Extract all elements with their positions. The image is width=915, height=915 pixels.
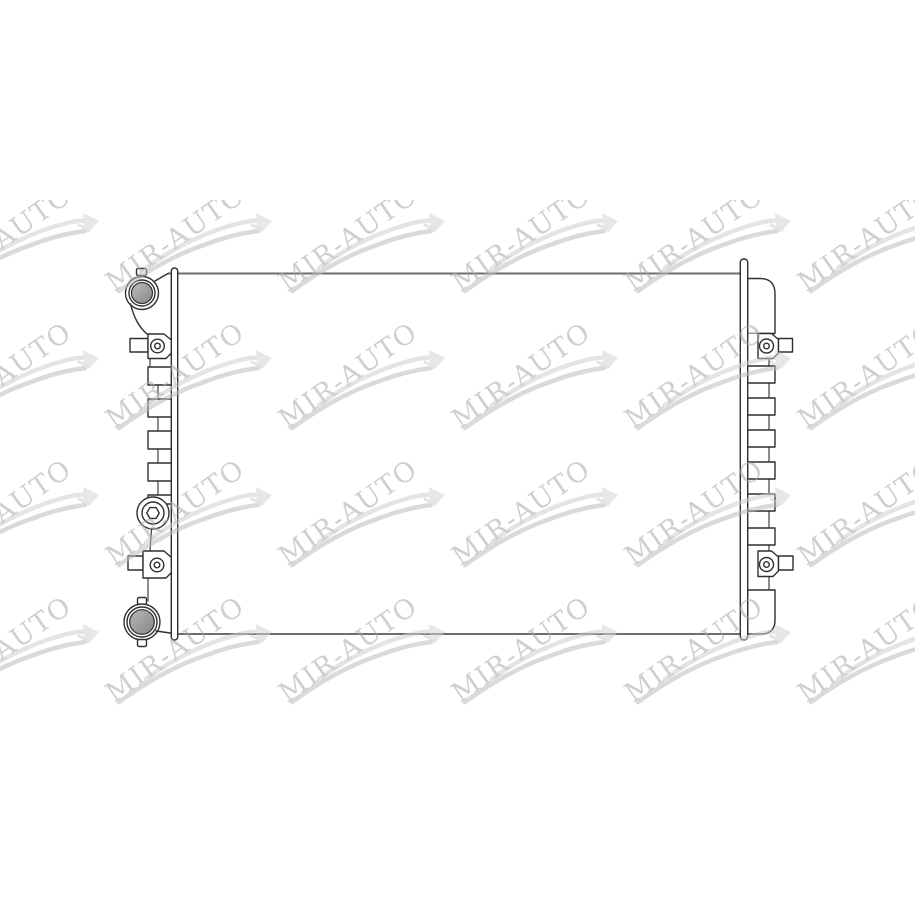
right-header-plate bbox=[740, 259, 747, 640]
side-ribs-left bbox=[148, 367, 172, 504]
left-end-tank bbox=[124, 269, 177, 647]
radiator-line-drawing bbox=[0, 0, 915, 915]
right-end-tank bbox=[748, 279, 794, 635]
outlet-port bbox=[124, 598, 160, 647]
mounting-bracket-bottom-right bbox=[758, 551, 793, 577]
mounting-bracket-top-right bbox=[758, 334, 793, 359]
drain-plug bbox=[137, 497, 169, 529]
radiator-core bbox=[168, 274, 745, 635]
product-image: MIR-AUTOMIR-AUTOMIR-AUTOMIR-AUTOMIR-AUTO… bbox=[0, 0, 915, 915]
mounting-bracket-top-left bbox=[130, 334, 172, 359]
left-header-plate bbox=[171, 268, 177, 640]
mounting-bracket-bottom-left bbox=[128, 551, 172, 578]
